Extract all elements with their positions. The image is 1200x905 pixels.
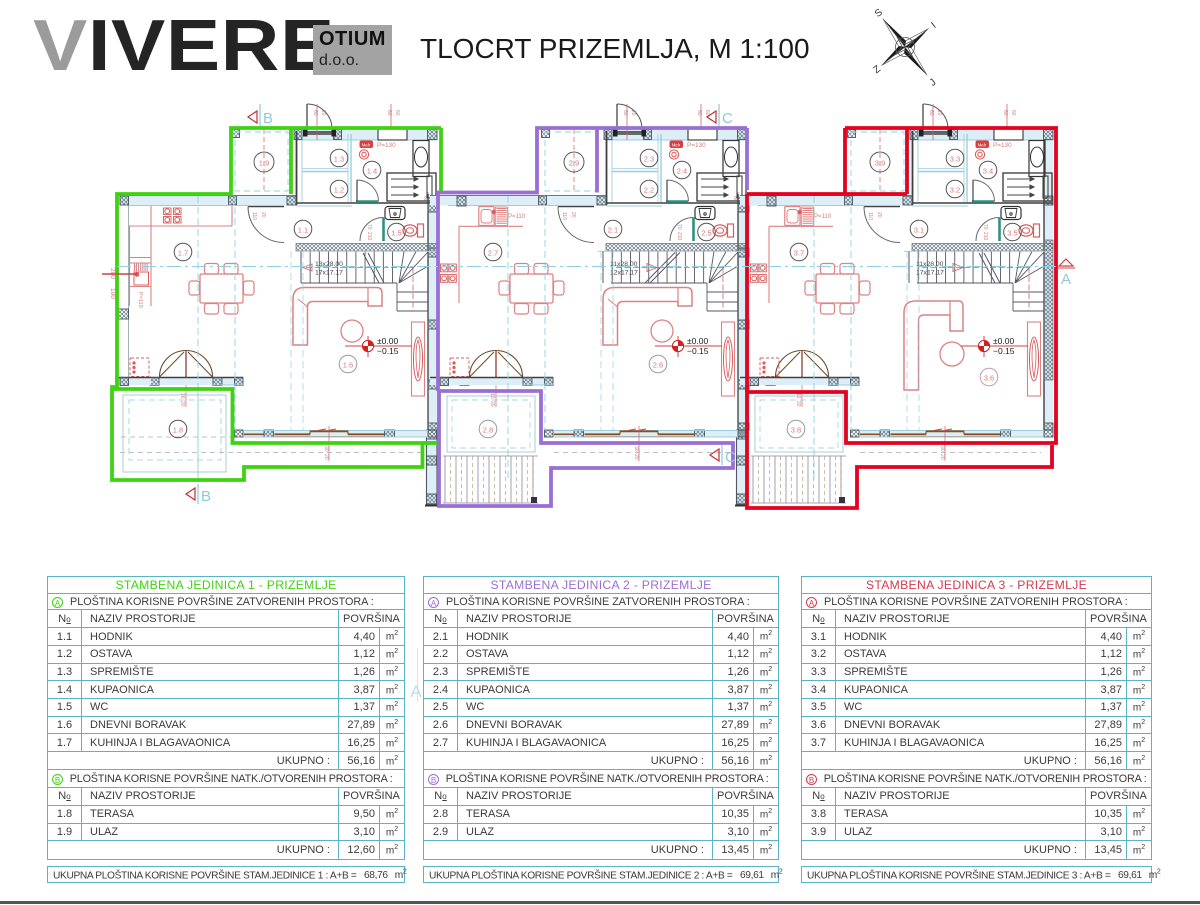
svg-text:3.6: 3.6 [984, 374, 994, 383]
svg-text:17x17.17: 17x17.17 [315, 270, 343, 277]
svg-text:P=110: P=110 [508, 214, 526, 220]
svg-text:Z: Z [871, 64, 883, 76]
svg-text:1.6: 1.6 [343, 361, 353, 370]
svg-text:3.9: 3.9 [875, 159, 885, 168]
svg-text:20: 20 [633, 454, 639, 460]
svg-text:−0.15: −0.15 [377, 346, 399, 356]
svg-text:110: 110 [561, 212, 567, 220]
svg-text:P=130: P=130 [377, 142, 396, 149]
svg-text:B: B [263, 110, 273, 127]
svg-text:I: I [930, 20, 939, 30]
svg-text:J: J [928, 77, 939, 89]
svg-text:20: 20 [630, 110, 636, 116]
svg-text:110: 110 [251, 212, 257, 220]
svg-text:100: 100 [109, 288, 116, 299]
svg-text:1.2: 1.2 [334, 186, 344, 195]
svg-text:1.7: 1.7 [178, 249, 188, 258]
svg-text:20: 20 [939, 454, 945, 460]
svg-text:A: A [1061, 271, 1071, 288]
svg-text:3.8: 3.8 [791, 426, 801, 435]
svg-text:±0.00: ±0.00 [993, 336, 1014, 346]
svg-text:20: 20 [795, 401, 801, 407]
svg-text:70: 70 [366, 224, 372, 230]
svg-text:60: 60 [1010, 110, 1016, 116]
svg-text:11x28.00: 11x28.00 [610, 261, 638, 268]
svg-text:30: 30 [939, 446, 945, 452]
svg-text:3.1: 3.1 [914, 226, 924, 235]
svg-text:20: 20 [323, 454, 329, 460]
svg-text:P=110: P=110 [137, 292, 143, 308]
svg-text:60: 60 [928, 110, 934, 116]
svg-text:B: B [201, 488, 211, 505]
svg-text:2.7: 2.7 [488, 249, 498, 258]
svg-text:210: 210 [366, 232, 372, 241]
svg-text:210: 210 [982, 232, 988, 241]
svg-text:1.1: 1.1 [298, 226, 308, 235]
svg-text:60: 60 [312, 110, 318, 116]
svg-text:30: 30 [633, 446, 639, 452]
svg-text:C: C [725, 449, 736, 466]
svg-text:20: 20 [179, 401, 185, 407]
svg-text:2.6: 2.6 [653, 361, 663, 370]
svg-text:−0.15: −0.15 [687, 346, 709, 356]
svg-text:3.5: 3.5 [1007, 229, 1017, 238]
svg-text:2.9: 2.9 [569, 159, 579, 168]
svg-text:3.4: 3.4 [983, 167, 993, 176]
svg-text:11x28.00: 11x28.00 [916, 261, 944, 268]
svg-text:20: 20 [320, 110, 326, 116]
svg-text:C: C [722, 110, 733, 127]
svg-text:20: 20 [570, 212, 576, 218]
svg-text:A: A [410, 682, 422, 701]
svg-text:70: 70 [676, 224, 682, 230]
svg-text:60: 60 [622, 110, 628, 116]
svg-text:P=130: P=130 [687, 142, 706, 149]
svg-text:110: 110 [867, 212, 873, 220]
svg-text:20: 20 [876, 212, 882, 218]
svg-text:20: 20 [489, 401, 495, 407]
svg-text:2.5: 2.5 [701, 229, 711, 238]
svg-text:±0.00: ±0.00 [687, 336, 708, 346]
svg-text:1.3: 1.3 [334, 155, 344, 164]
svg-text:P=130: P=130 [993, 142, 1012, 149]
svg-text:Meh: Meh [978, 142, 987, 147]
svg-text:60: 60 [386, 110, 392, 116]
svg-text:12x17.17: 12x17.17 [610, 270, 638, 277]
svg-text:60: 60 [696, 110, 702, 116]
svg-text:Meh: Meh [362, 142, 371, 147]
svg-text:13x28.00: 13x28.00 [315, 261, 343, 268]
svg-text:16: 16 [179, 393, 185, 399]
svg-text:20: 20 [936, 110, 942, 116]
svg-text:P=110: P=110 [814, 214, 832, 220]
svg-text:Meh: Meh [672, 142, 681, 147]
svg-text:60: 60 [1002, 110, 1008, 116]
svg-text:3.7: 3.7 [794, 249, 804, 258]
svg-text:20: 20 [260, 212, 266, 218]
svg-text:1.9: 1.9 [259, 159, 269, 168]
svg-text:17x17.17: 17x17.17 [916, 270, 944, 277]
svg-text:2.8: 2.8 [483, 426, 493, 435]
svg-text:1.5: 1.5 [391, 229, 401, 238]
svg-text:1.8: 1.8 [173, 426, 183, 435]
svg-text:30: 30 [323, 446, 329, 452]
svg-text:−0.15: −0.15 [993, 346, 1015, 356]
svg-text:1.4: 1.4 [367, 167, 377, 176]
svg-text:S: S [873, 7, 885, 20]
svg-text:3.2: 3.2 [950, 186, 960, 195]
svg-text:70: 70 [982, 224, 988, 230]
svg-text:±0.00: ±0.00 [377, 336, 398, 346]
svg-text:2.2: 2.2 [644, 186, 654, 195]
svg-text:60: 60 [394, 110, 400, 116]
svg-text:2.3: 2.3 [644, 155, 654, 164]
svg-text:2.4: 2.4 [677, 167, 687, 176]
svg-text:2.1: 2.1 [608, 226, 618, 235]
svg-text:3.3: 3.3 [950, 155, 960, 164]
svg-text:210: 210 [676, 232, 682, 241]
